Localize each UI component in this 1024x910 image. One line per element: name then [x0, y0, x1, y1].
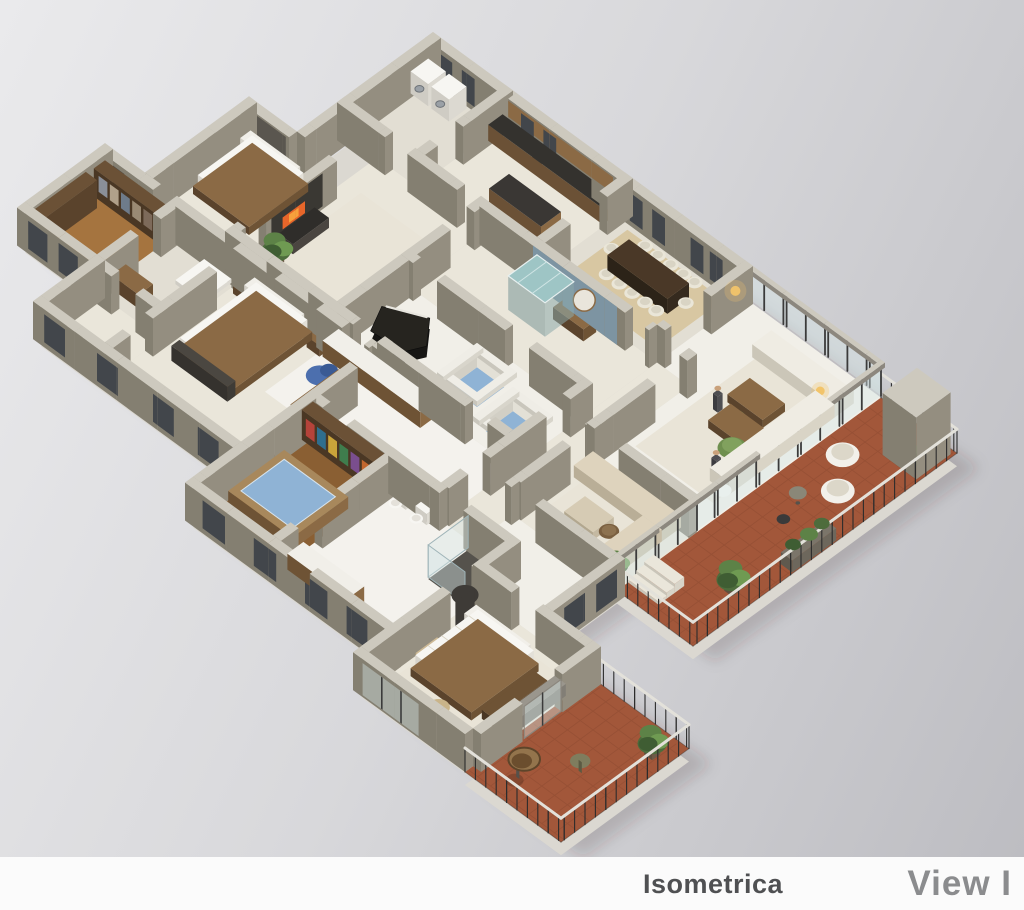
wall — [455, 115, 471, 165]
sconce-light — [724, 280, 746, 302]
brand-label: Isometrica — [643, 869, 783, 900]
wall — [483, 442, 505, 496]
view-label: View I — [907, 864, 1012, 904]
arched-mirror — [573, 289, 595, 311]
dining-chair — [648, 305, 664, 317]
render-canvas: Isometrica View I — [0, 0, 1024, 910]
round-lounger — [826, 442, 860, 467]
round-lounger — [821, 479, 855, 504]
caption-band: Isometrica View I — [0, 857, 1024, 910]
dining-chair — [687, 277, 703, 289]
wall — [679, 348, 697, 399]
wall — [657, 320, 671, 369]
dining-accent-wall — [645, 322, 657, 369]
terrace-stool — [777, 514, 791, 524]
wall — [505, 477, 519, 525]
wall — [430, 480, 448, 531]
isometric-floorplan — [0, 0, 1024, 858]
dining-accent-wall — [379, 127, 393, 176]
dining-chair — [637, 297, 653, 309]
dining-accent-wall — [449, 178, 465, 228]
dining-chair — [678, 297, 694, 309]
wall — [460, 397, 473, 444]
